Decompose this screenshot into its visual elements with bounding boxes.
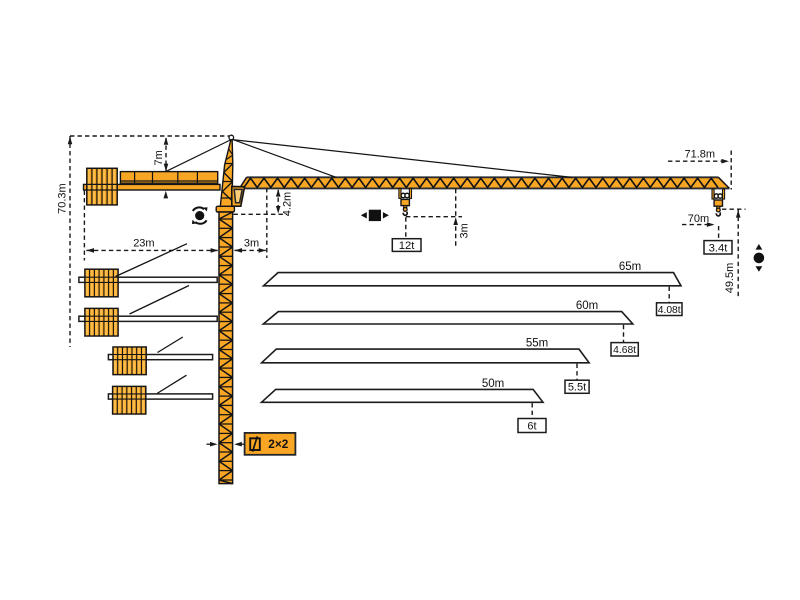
svg-text:4.2m: 4.2m [282,192,294,216]
svg-text:12t: 12t [399,240,416,252]
svg-text:70.3m: 70.3m [57,183,69,214]
svg-text:7m: 7m [153,150,165,165]
svg-text:3m: 3m [459,223,471,238]
svg-text:6t: 6t [527,421,536,433]
svg-text:3.4t: 3.4t [709,242,729,254]
svg-text:23m: 23m [133,238,154,250]
svg-text:71.8m: 71.8m [685,149,716,161]
svg-text:55m: 55m [526,338,548,350]
svg-text:60m: 60m [576,300,598,312]
svg-text:4.08t: 4.08t [658,305,681,316]
svg-text:5.5t: 5.5t [568,382,586,394]
svg-text:70m: 70m [688,213,709,225]
svg-text:4.68t: 4.68t [613,345,636,356]
svg-text:49.5m: 49.5m [724,263,736,294]
svg-text:2×2: 2×2 [268,437,288,451]
svg-text:50m: 50m [482,378,504,390]
svg-text:65m: 65m [619,261,641,273]
svg-text:3m: 3m [244,238,259,250]
